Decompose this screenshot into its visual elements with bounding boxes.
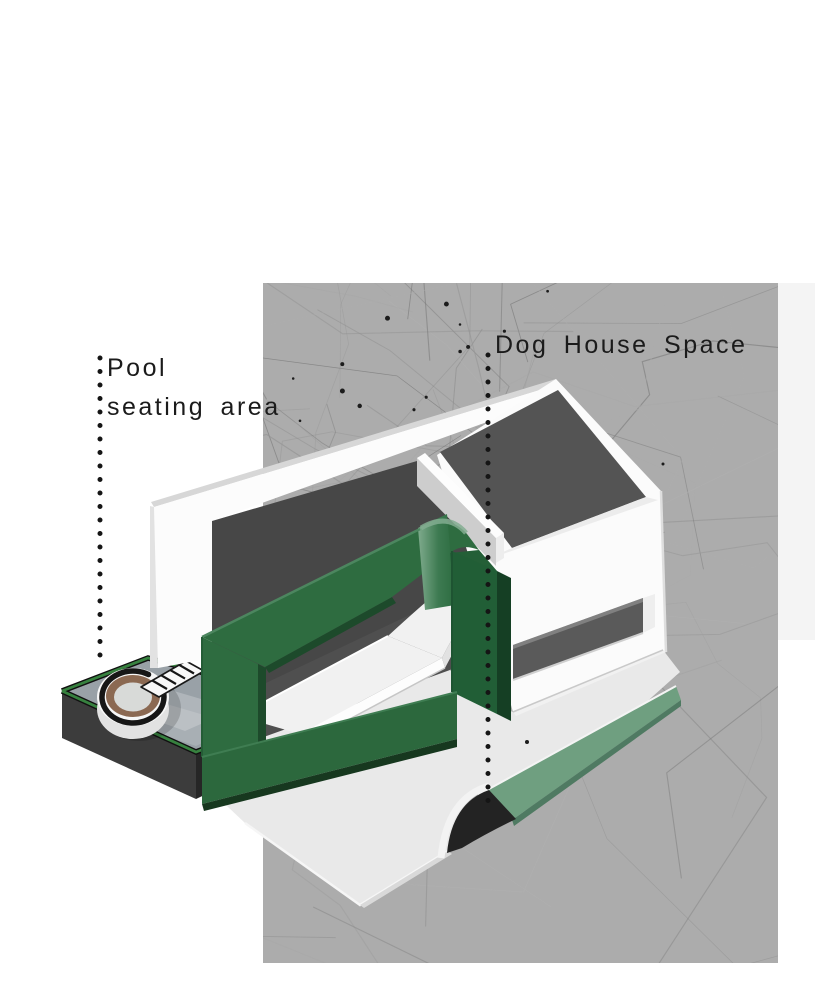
sketch-dot — [459, 323, 462, 326]
sketch-dot — [444, 302, 449, 307]
sketch-dot — [340, 389, 345, 394]
sketch-dot — [425, 396, 428, 399]
sketch-dot — [466, 345, 470, 349]
sketch-line — [524, 30, 815, 323]
sketch-dot — [412, 408, 415, 411]
sketch-dot — [340, 362, 344, 366]
sketch-dot — [385, 316, 390, 321]
axonometric-diagram — [0, 0, 815, 1000]
sketch-dot — [546, 290, 549, 293]
pool-label-line2: seating area — [107, 395, 281, 420]
sketch-dot — [458, 350, 462, 354]
diagram-page: Pool seating area Dog House Space — [0, 0, 815, 1000]
partition-end-face — [496, 533, 504, 563]
sketch-dot — [357, 404, 361, 408]
sketch-dot — [292, 377, 295, 380]
dog-house-label: Dog House Space — [495, 333, 747, 358]
right-column-side — [497, 571, 511, 721]
canvas-right-strip — [778, 283, 815, 640]
right-column — [452, 551, 497, 714]
sketch-dot — [299, 419, 302, 422]
window-jamb — [643, 594, 655, 633]
pool-label-line1: Pool — [107, 356, 167, 381]
sketch-line — [209, 0, 391, 296]
speck — [662, 463, 665, 466]
speck — [525, 740, 529, 744]
